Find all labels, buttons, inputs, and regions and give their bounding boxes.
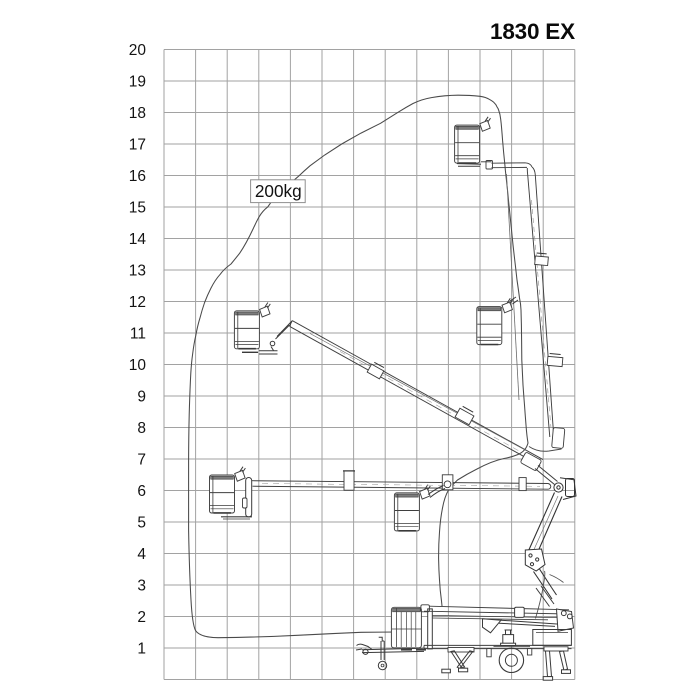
svg-text:15: 15 — [129, 200, 146, 217]
svg-text:16: 16 — [129, 168, 146, 185]
svg-text:8: 8 — [137, 420, 146, 437]
svg-text:5: 5 — [137, 515, 146, 532]
svg-text:20: 20 — [129, 42, 147, 59]
svg-text:3: 3 — [137, 578, 146, 595]
svg-text:4: 4 — [137, 546, 146, 563]
svg-text:1: 1 — [137, 641, 146, 658]
svg-text:19: 19 — [129, 74, 146, 91]
svg-text:11: 11 — [130, 326, 146, 343]
svg-text:14: 14 — [129, 231, 147, 248]
svg-text:9: 9 — [137, 389, 146, 406]
svg-text:18: 18 — [129, 105, 146, 122]
svg-text:200kg: 200kg — [255, 181, 302, 201]
svg-text:12: 12 — [129, 294, 146, 311]
svg-text:13: 13 — [129, 263, 146, 280]
svg-text:6: 6 — [137, 483, 146, 500]
svg-text:1830 EX: 1830 EX — [490, 19, 575, 44]
svg-text:17: 17 — [129, 137, 146, 154]
svg-text:2: 2 — [137, 609, 146, 626]
svg-text:10: 10 — [129, 357, 147, 374]
svg-text:7: 7 — [137, 452, 146, 469]
